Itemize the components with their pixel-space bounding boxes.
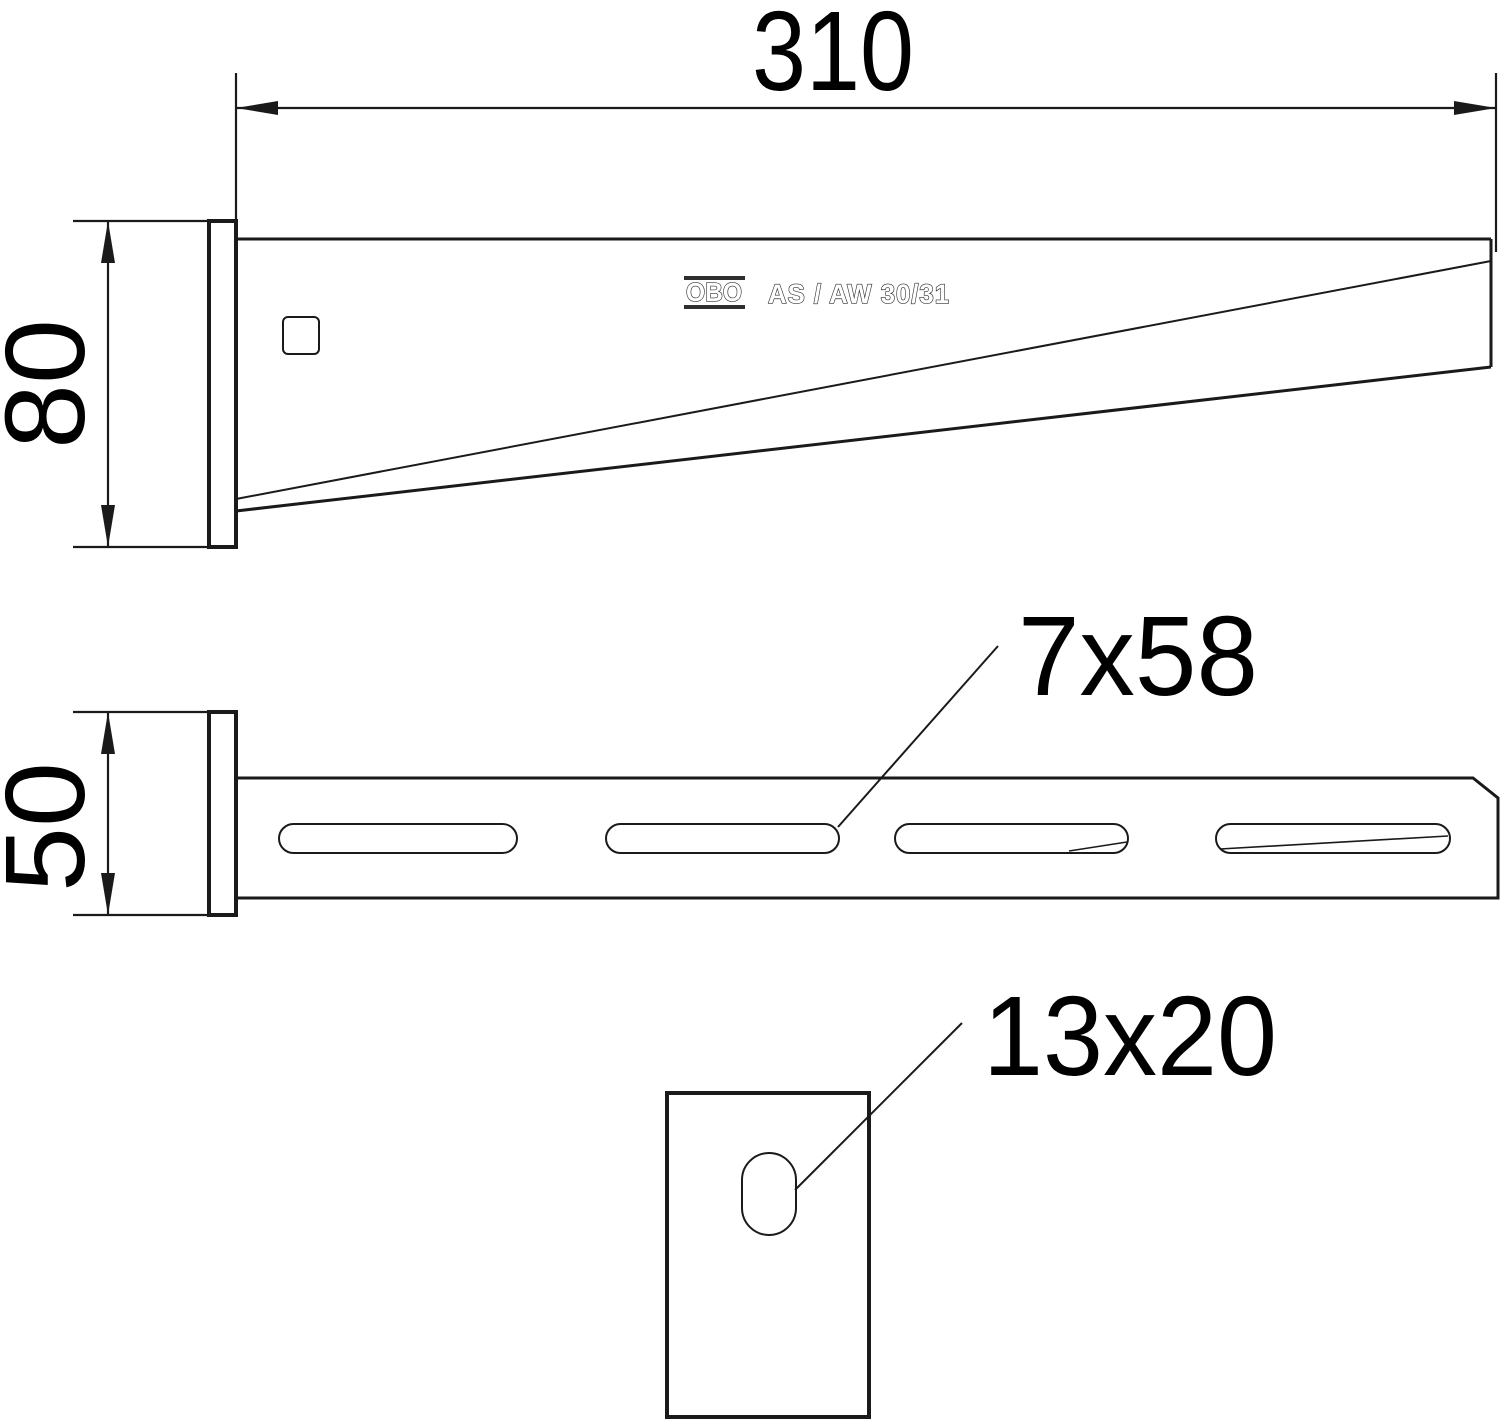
dim-length-label: 310 bbox=[752, 0, 914, 114]
dim-height-label: 80 bbox=[0, 319, 108, 449]
arrowhead-80-bottom bbox=[101, 505, 115, 547]
arrowhead-310-right bbox=[1454, 101, 1496, 115]
slot-2 bbox=[606, 824, 839, 853]
wall-plate-side bbox=[209, 221, 236, 547]
slot-3-floor-edge bbox=[1069, 842, 1127, 851]
technical-drawing: 310 80 OBO AS / AW 30/31 50 bbox=[0, 0, 1500, 1419]
obo-logo-text: OBO bbox=[686, 277, 742, 307]
plan-view: 50 7x58 bbox=[0, 593, 1498, 915]
wall-plate-front bbox=[667, 1093, 869, 1417]
arrowhead-80-top bbox=[101, 221, 115, 263]
arm-plan-outline bbox=[236, 778, 1498, 898]
side-view: 310 80 OBO AS / AW 30/31 bbox=[0, 0, 1496, 547]
oblong-hole bbox=[742, 1153, 796, 1235]
slot-4-floor-edge bbox=[1220, 836, 1448, 849]
leader-line-slot bbox=[838, 646, 998, 827]
slot-3 bbox=[895, 824, 1128, 853]
dim-width-label: 50 bbox=[0, 762, 108, 892]
arrowhead-50-top bbox=[101, 712, 115, 754]
wall-plate-plan bbox=[209, 712, 236, 915]
dim-hole-label: 13x20 bbox=[983, 973, 1277, 1099]
leader-line-hole bbox=[795, 1023, 962, 1190]
front-plate-view: 13x20 bbox=[667, 973, 1277, 1417]
product-code-label: AS / AW 30/31 bbox=[768, 279, 950, 309]
drawing-canvas: 310 80 OBO AS / AW 30/31 50 bbox=[0, 0, 1500, 1419]
square-hole bbox=[283, 317, 319, 354]
arrowhead-310-left bbox=[236, 101, 278, 115]
obo-logo: OBO bbox=[684, 276, 745, 309]
slot-1 bbox=[279, 824, 517, 853]
arm-bottom-taper-edge bbox=[236, 367, 1491, 511]
dim-slot-label: 7x58 bbox=[1018, 593, 1258, 719]
